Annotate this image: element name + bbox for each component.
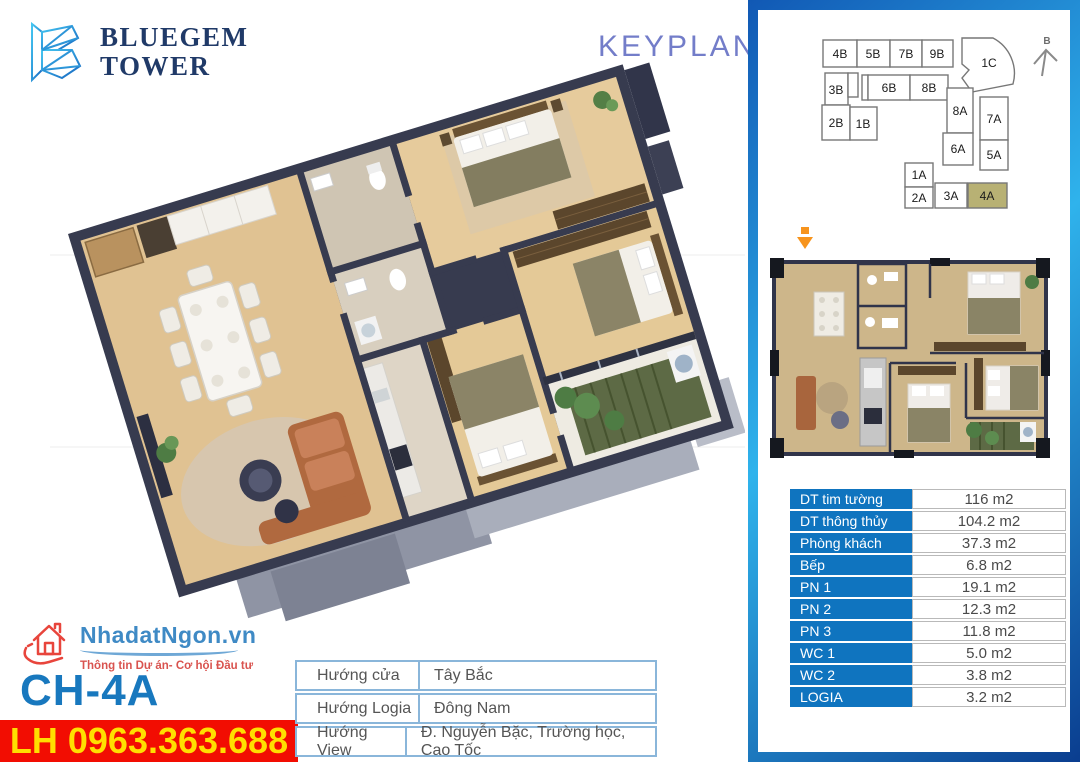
svg-text:3A: 3A xyxy=(944,189,959,203)
table-row: DT tim tường116 m2 xyxy=(790,489,1066,509)
svg-text:5B: 5B xyxy=(866,47,881,61)
area-label: DT tim tường xyxy=(790,489,912,509)
panel-content: 4B 5B 7B 9B 1C 3B 6B 8B 2B 1B 8A 7A 6A 5… xyxy=(758,10,1070,752)
area-label: PN 3 xyxy=(790,621,912,641)
table-row: PN 212.3 m2 xyxy=(790,599,1066,619)
compass-label: B xyxy=(1043,36,1050,47)
svg-text:6A: 6A xyxy=(951,142,966,156)
area-table: DT tim tường116 m2 DT thông thủy104.2 m2… xyxy=(790,487,1066,709)
svg-text:8B: 8B xyxy=(922,81,937,95)
hotline-banner: LH 0963.363.688 xyxy=(0,720,298,762)
svg-text:8A: 8A xyxy=(953,104,968,118)
table-row: PN 119.1 m2 xyxy=(790,577,1066,597)
area-value: 116 m2 xyxy=(912,489,1066,509)
keyplan-diagram: 4B 5B 7B 9B 1C 3B 6B 8B 2B 1B 8A 7A 6A 5… xyxy=(758,20,1070,230)
area-value: 5.0 m2 xyxy=(912,643,1066,663)
table-row: LOGIA3.2 m2 xyxy=(790,687,1066,707)
compass-arrow-icon xyxy=(1034,50,1057,76)
table-row: Phòng khách37.3 m2 xyxy=(790,533,1066,553)
svg-text:4A: 4A xyxy=(980,189,995,203)
compass-north: B xyxy=(1034,36,1057,76)
svg-text:9B: 9B xyxy=(930,47,945,61)
svg-text:2B: 2B xyxy=(829,116,844,130)
svg-text:4B: 4B xyxy=(833,47,848,61)
area-label: PN 1 xyxy=(790,577,912,597)
agency-swoosh-divider xyxy=(80,650,238,656)
area-value: 3.8 m2 xyxy=(912,665,1066,685)
area-value: 6.8 m2 xyxy=(912,555,1066,575)
orientation-table: Hướng cửa Tây Bắc Hướng Logia Đông Nam H… xyxy=(295,660,657,759)
keyplan-title: KEYPLAN xyxy=(598,30,757,64)
table-row: WC 23.8 m2 xyxy=(790,665,1066,685)
orientation-label: Hướng cửa xyxy=(297,662,420,689)
area-value: 11.8 m2 xyxy=(912,621,1066,641)
orientation-label: Hướng Logia xyxy=(297,695,420,722)
svg-text:2A: 2A xyxy=(912,191,927,205)
area-value: 3.2 m2 xyxy=(912,687,1066,707)
floorplan-2d-render xyxy=(770,258,1050,458)
brand-name-line1: BLUEGEM xyxy=(100,23,249,52)
svg-text:7B: 7B xyxy=(899,47,914,61)
orientation-label: Hướng View xyxy=(297,728,407,755)
svg-text:3B: 3B xyxy=(829,83,844,97)
floorplan-3d-render xyxy=(50,62,745,627)
agency-house-hand-icon xyxy=(22,618,72,670)
floorplan-flyer-page: { "header": { "brand_line1": "BLUEGEM", … xyxy=(0,0,1080,762)
unit-code-title: CH-4A xyxy=(20,666,159,716)
orientation-value: Đ. Nguyễn Bặc, Trường học, Cao Tốc xyxy=(407,724,655,760)
area-label: DT thông thủy xyxy=(790,511,912,531)
area-value: 12.3 m2 xyxy=(912,599,1066,619)
agency-logo-block: NhadatNgon.vn Thông tin Dự án- Cơ hội Đầ… xyxy=(22,618,256,672)
orientation-row: Hướng Logia Đông Nam xyxy=(295,693,657,724)
table-row: Bếp6.8 m2 xyxy=(790,555,1066,575)
area-label: LOGIA xyxy=(790,687,912,707)
agency-site-name: NhadatNgon.vn xyxy=(80,622,256,649)
orientation-value: Tây Bắc xyxy=(420,667,493,685)
location-marker-icon xyxy=(796,227,814,249)
orientation-row: Hướng cửa Tây Bắc xyxy=(295,660,657,691)
svg-text:1C: 1C xyxy=(981,56,997,70)
table-row: DT thông thủy104.2 m2 xyxy=(790,511,1066,531)
area-label: PN 2 xyxy=(790,599,912,619)
area-label: Phòng khách xyxy=(790,533,912,553)
svg-text:1B: 1B xyxy=(856,117,871,131)
area-value: 104.2 m2 xyxy=(912,511,1066,531)
agency-text-block: NhadatNgon.vn Thông tin Dự án- Cơ hội Đầ… xyxy=(80,618,256,672)
table-row: WC 15.0 m2 xyxy=(790,643,1066,663)
area-label: WC 2 xyxy=(790,665,912,685)
area-label: Bếp xyxy=(790,555,912,575)
area-value: 37.3 m2 xyxy=(912,533,1066,553)
table-row: PN 311.8 m2 xyxy=(790,621,1066,641)
svg-text:5A: 5A xyxy=(987,148,1002,162)
area-value: 19.1 m2 xyxy=(912,577,1066,597)
area-label: WC 1 xyxy=(790,643,912,663)
svg-text:1A: 1A xyxy=(912,168,927,182)
svg-text:7A: 7A xyxy=(987,112,1002,126)
orientation-value: Đông Nam xyxy=(420,700,510,718)
svg-text:6B: 6B xyxy=(882,81,897,95)
right-info-panel: 4B 5B 7B 9B 1C 3B 6B 8B 2B 1B 8A 7A 6A 5… xyxy=(748,0,1080,762)
orientation-row: Hướng View Đ. Nguyễn Bặc, Trường học, Ca… xyxy=(295,726,657,757)
